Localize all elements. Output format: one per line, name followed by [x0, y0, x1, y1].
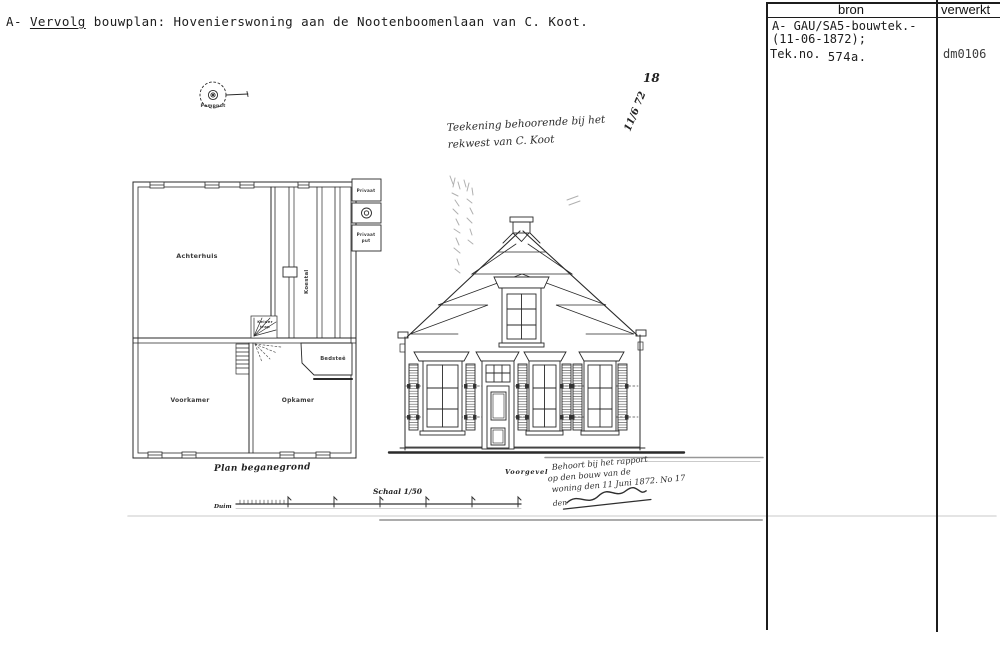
verwerkt-value: dm0106 — [943, 48, 986, 61]
well-label: Pompput — [200, 103, 226, 109]
window-middle — [518, 352, 571, 435]
bedstee-label: Bedsteê — [320, 355, 346, 362]
approval-note: Behoort bij het rapport op den bouw van … — [546, 450, 688, 510]
column-header-verwerkt: verwerkt — [941, 2, 990, 17]
floor-plan: Kelder trap Bedsteê — [133, 179, 381, 458]
front-elevation — [389, 217, 684, 453]
approval-line4: den — [553, 498, 568, 508]
elevation-caption: Voorgevel — [505, 468, 548, 476]
plan-caption-text: Plan beganegrond — [213, 462, 311, 474]
opkamer-label: Opkamer — [282, 397, 314, 404]
dormer-window — [494, 277, 549, 347]
architectural-drawing: Pompput — [0, 0, 1000, 649]
table-vline-left — [766, 2, 768, 630]
source-tekno-value: 574a. — [828, 50, 867, 64]
koestal-label: Koestal — [304, 270, 310, 294]
pencil-scribbles — [450, 176, 580, 273]
dedication-note: Teekening behoorende bij het rekwest van… — [447, 114, 608, 151]
stair-label-line2: trap — [260, 324, 270, 329]
front-door — [476, 352, 519, 449]
privaat-annex: Privaat Privaat put — [352, 179, 381, 251]
dedication-line1: Teekening behoorende bij het — [447, 114, 607, 134]
source-line-2: (11-06-1872); — [772, 33, 866, 46]
scale-label: Schaal 1/50 — [373, 487, 423, 496]
date-mark-top: 18 — [643, 71, 660, 85]
scale-unit-label: Duim — [213, 504, 232, 510]
source-tekno-label: Tek.no. — [770, 47, 821, 61]
privaat-put-label-2: put — [362, 238, 371, 243]
chimney — [503, 217, 540, 243]
date-mark-slant: 11/6 72 — [623, 90, 649, 133]
privaat-put-label-1: Privaat — [357, 232, 376, 237]
achterhuis-label: Achterhuis — [176, 252, 217, 260]
dedication-line2: rekwest van C. Koot — [447, 133, 555, 151]
column-header-bron: bron — [766, 2, 936, 17]
cellar-stair-symbol — [236, 344, 249, 374]
source-line-3: Tek.no. 574a. — [770, 48, 866, 61]
scale-bar: Schaal 1/50 Duim — [213, 487, 521, 510]
table-vline-middle — [936, 0, 938, 632]
plan-caption: Plan beganegrond — [213, 462, 311, 474]
voorkamer-label: Voorkamer — [170, 397, 209, 404]
window-left — [409, 352, 475, 435]
date-mark: 18 11/6 72 — [623, 71, 661, 133]
bedstee-room: Bedsteê — [301, 343, 352, 379]
well-symbol: Pompput — [200, 82, 248, 109]
stairs-symbol: Kelder trap — [251, 316, 281, 362]
window-right — [573, 352, 627, 435]
archival-card-page: A- Vervolg bouwplan: Hovenierswoning aan… — [0, 0, 1000, 649]
privaat-label: Privaat — [357, 188, 376, 193]
